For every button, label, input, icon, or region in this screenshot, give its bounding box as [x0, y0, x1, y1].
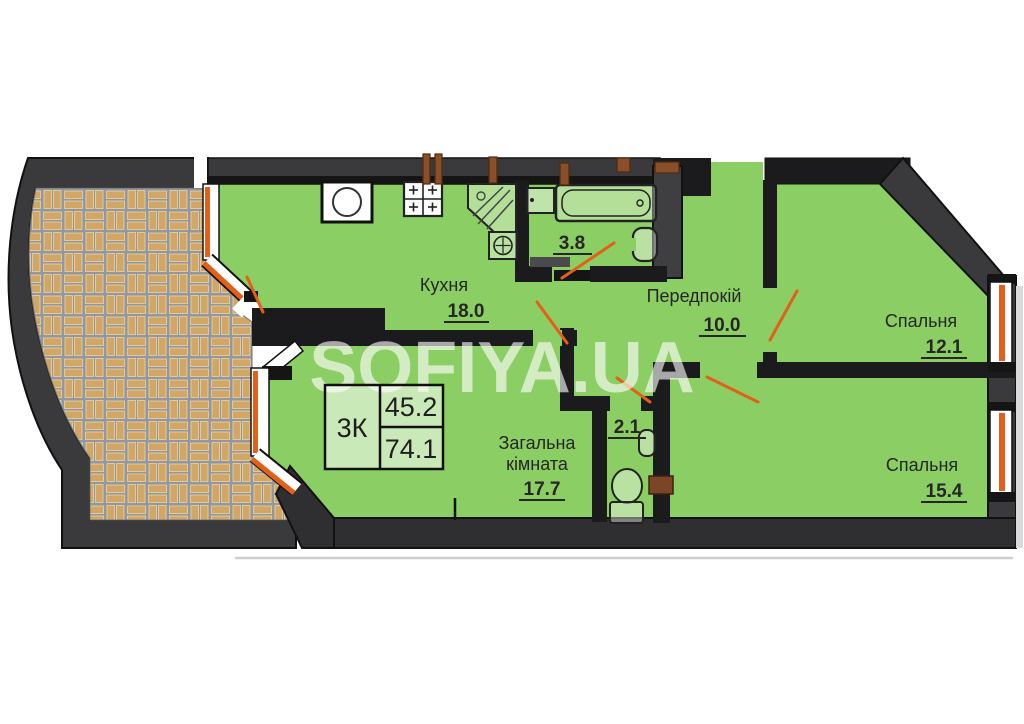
- kitchen-area: 18.0: [448, 301, 485, 322]
- hallway-area: 10.0: [704, 315, 741, 336]
- toilet-icon: [629, 228, 657, 261]
- entry-opening: [711, 162, 763, 184]
- sink-bowl: [333, 188, 361, 216]
- stove-icon: [404, 182, 442, 216]
- mid-wall: [757, 362, 1016, 378]
- hall-bedroom-wall: [763, 180, 777, 288]
- bedroom2-area: 15.4: [926, 481, 963, 502]
- bedroom2-window-frame: [999, 413, 1005, 491]
- bathroom-area: 3.8: [559, 233, 585, 254]
- bedroom2-label: Спальня: [886, 455, 958, 475]
- living-label-line1: Загальна: [499, 433, 577, 453]
- kitchen-living-wall: [252, 308, 268, 346]
- apartment-type: 3К: [337, 413, 368, 443]
- counter-bar: [530, 257, 570, 267]
- floor-plan-page: SOFIYA.UA 3К 45.2 74.1 Кухня 18.0 3.8 Пе…: [0, 0, 1024, 724]
- bedroom1-area: 12.1: [926, 337, 963, 358]
- wc-sink-icon: [639, 430, 655, 456]
- hallway-label: Передпокій: [647, 286, 742, 306]
- window-cap: [988, 492, 1016, 502]
- wc-left-wall: [592, 404, 607, 522]
- bath-wall: [515, 266, 552, 282]
- bedroom1-label: Спальня: [885, 311, 957, 331]
- kitchen-window-frame: [205, 187, 210, 257]
- info-table: 3К 45.2 74.1: [325, 385, 443, 469]
- wc-toilet-icon: [610, 469, 643, 523]
- living-area-value: 45.2: [385, 392, 438, 422]
- total-area-value: 74.1: [385, 434, 438, 464]
- wall-sleeve: [649, 476, 673, 494]
- window-cap: [988, 362, 1016, 372]
- living-area: 17.7: [524, 479, 561, 500]
- shaft-wall: [653, 166, 682, 278]
- bedroom1-window-frame: [999, 285, 1005, 361]
- wc-area: 2.1: [614, 417, 641, 438]
- facade-edge: [1016, 286, 1023, 548]
- washer-icon: [489, 232, 517, 259]
- kitchen-label: Кухня: [420, 275, 468, 295]
- wall-gap: [194, 156, 207, 188]
- living-bay-window-frame: [253, 371, 258, 453]
- floor-plan-drawing: SOFIYA.UA 3К 45.2 74.1 Кухня 18.0 3.8 Пе…: [0, 0, 1024, 724]
- bath-wall: [590, 266, 667, 282]
- living-label-line2: кімната: [506, 454, 569, 474]
